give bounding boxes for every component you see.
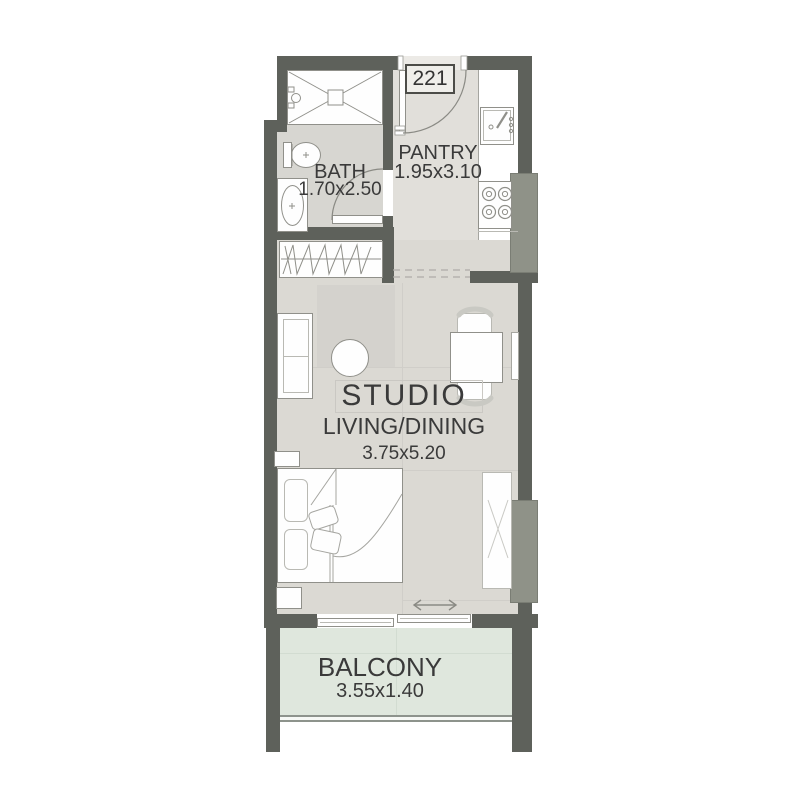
studio-dims: 3.75x5.20 bbox=[279, 441, 529, 467]
studio-label: STUDIO LIVING/DINING 3.75x5.20 bbox=[279, 381, 529, 467]
sliding-direction-arrow-icon bbox=[414, 600, 456, 610]
studio-name: STUDIO bbox=[279, 381, 529, 411]
shower-icon bbox=[288, 72, 381, 123]
floor-plan: 221 BATH 1.70x2.50 PANTRY 1.95x3.10 STUD… bbox=[0, 0, 800, 800]
unit-number-badge: 221 bbox=[405, 64, 455, 94]
wardrobe-hatch bbox=[281, 245, 381, 274]
balcony-label: BALCONY 3.55x1.40 bbox=[272, 654, 488, 702]
bed-details bbox=[308, 469, 402, 582]
balcony-dims: 3.55x1.40 bbox=[272, 680, 488, 702]
kitchen-sink-icon bbox=[489, 112, 513, 133]
studio-subtitle: LIVING/DINING bbox=[279, 411, 529, 441]
balcony-name: BALCONY bbox=[272, 654, 488, 680]
pantry-boundary-dashed bbox=[393, 270, 470, 277]
closet-x-marks bbox=[488, 500, 508, 558]
stove-burners-icon bbox=[483, 188, 512, 219]
pantry-name: PANTRY bbox=[377, 144, 499, 162]
bath-dims: 1.70x2.50 bbox=[270, 181, 410, 198]
unit-number: 221 bbox=[412, 67, 447, 91]
pantry-dims: 1.95x3.10 bbox=[377, 162, 499, 183]
pantry-label: PANTRY 1.95x3.10 bbox=[377, 144, 499, 183]
